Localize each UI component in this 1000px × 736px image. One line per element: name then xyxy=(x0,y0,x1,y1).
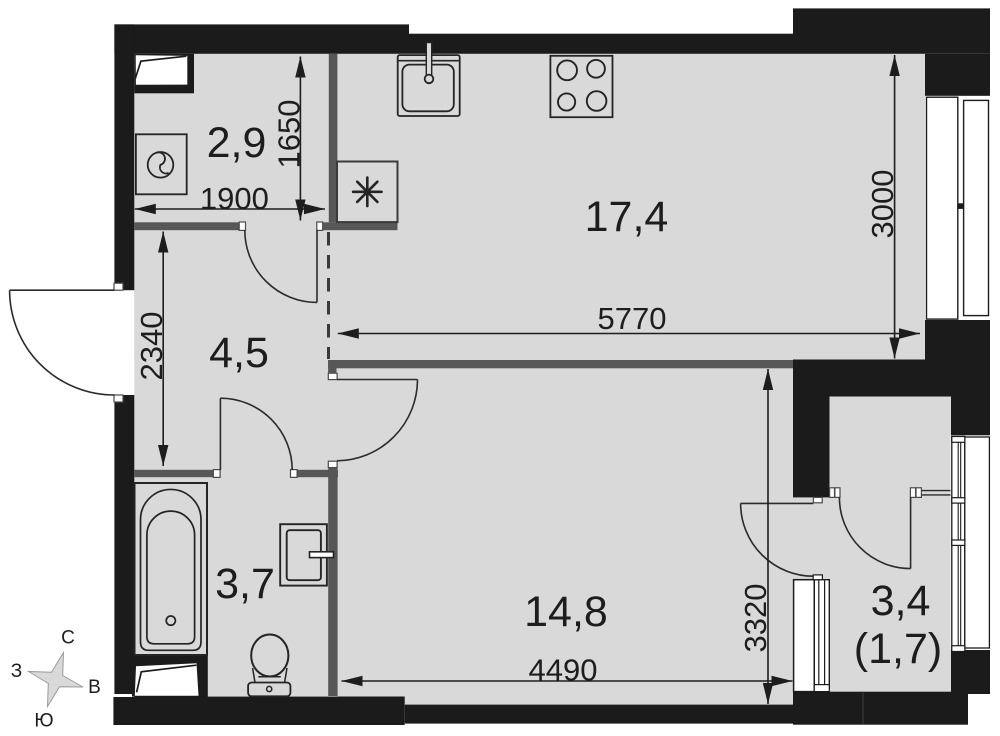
svg-text:1900: 1900 xyxy=(200,181,269,216)
svg-text:В: В xyxy=(88,677,101,698)
svg-text:17,4: 17,4 xyxy=(585,193,669,241)
svg-text:4490: 4490 xyxy=(529,653,598,688)
svg-text:1650: 1650 xyxy=(272,100,307,169)
svg-text:14,8: 14,8 xyxy=(524,588,608,636)
svg-text:3320: 3320 xyxy=(738,584,773,653)
svg-text:Ю: Ю xyxy=(34,711,53,732)
svg-text:З: З xyxy=(11,661,22,682)
svg-text:3,4: 3,4 xyxy=(871,577,931,625)
svg-text:С: С xyxy=(61,628,75,649)
svg-text:4,5: 4,5 xyxy=(209,329,269,377)
svg-text:(1,7): (1,7) xyxy=(854,625,942,673)
svg-text:2340: 2340 xyxy=(134,312,169,381)
svg-text:2,9: 2,9 xyxy=(207,119,267,167)
svg-text:3,7: 3,7 xyxy=(215,560,275,608)
svg-text:3000: 3000 xyxy=(865,170,900,239)
svg-text:5770: 5770 xyxy=(598,301,667,336)
